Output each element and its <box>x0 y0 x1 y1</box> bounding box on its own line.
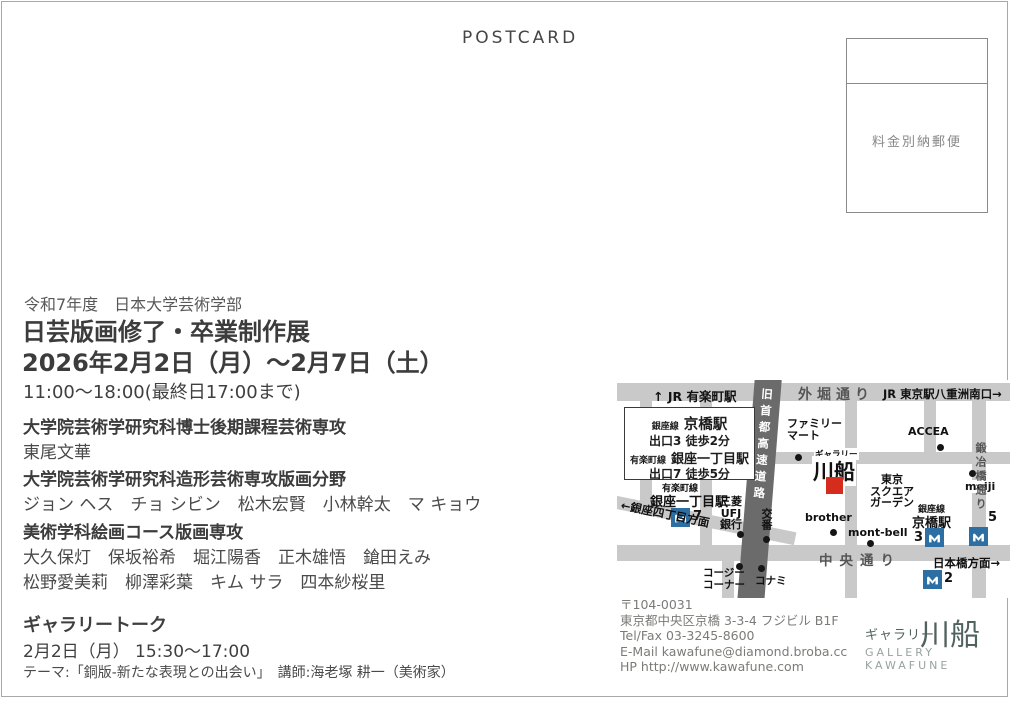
poi-koban: 交番 <box>758 508 774 530</box>
access-line1-line: 銀座線 <box>652 422 679 432</box>
section-undergrad-heading: 美術学科絵画コース版画専攻 <box>23 518 243 543</box>
gallery-logo-en: GALLERY KAWAFUNE <box>865 646 1024 672</box>
stamp-box-divider <box>847 83 987 84</box>
access-line1-station: 京橋駅 <box>684 417 728 433</box>
access-line1-exit: 出口3 徒歩2分 <box>625 434 754 448</box>
poi-konami: コナミ <box>755 573 787 588</box>
postcard-title: POSTCARD <box>462 28 578 48</box>
poi-dot-brother <box>830 529 837 536</box>
gallery-contact-block: 〒104-0031 東京都中央区京橋 3-3-4 フジビル B1F Tel/Fa… <box>620 597 847 675</box>
access-map: 旧首都高速道路 ↑ JR 有楽町駅 外堀通り JR 東京駅八重洲南口→ 銀座線 … <box>617 380 1010 598</box>
gallery-talk-theme: テーマ:「銅版-新たな表現との出会い」 講師:海老塚 耕一（美術家） <box>23 662 455 682</box>
access-line2-line: 有楽町線 <box>630 456 666 466</box>
poi-familymart: ファミリー マート <box>787 418 842 441</box>
label-sotobori-dori: 外堀通り <box>798 384 874 404</box>
postage-stamp-box: 料金別納郵便 <box>846 38 988 213</box>
station-kyobashi-exit3: 3 <box>914 530 923 545</box>
station-kyobashi-exit2: 2 <box>944 571 953 586</box>
label-kajibashi-dori: 鍛冶橋通り <box>972 442 988 512</box>
poi-tokyo-square-garden: 東京 スクエア ガーデン <box>863 474 921 509</box>
label-jr-tokyo-yaesu: JR 東京駅八重洲南口→ <box>883 386 1002 402</box>
access-line2-station: 銀座一丁目駅 <box>671 452 749 467</box>
station-access-box: 銀座線 京橋駅 出口3 徒歩2分 有楽町線 銀座一丁目駅 出口7 徒歩5分 <box>624 407 755 480</box>
section-doctoral-heading: 大学院芸術学研究科博士後期課程芸術専攻 <box>23 413 346 438</box>
poi-accea: ACCEA <box>908 425 949 438</box>
label-nihonbashi-direction: 日本橋方面→ <box>933 555 1000 571</box>
station-kyobashi-exit5: 5 <box>988 510 997 525</box>
section-undergrad-names-1: 大久保灯 保坂裕希 堀江陽香 正木雄悟 鎗田えみ <box>23 543 431 568</box>
metro-logo-icon <box>923 570 942 589</box>
poi-mitsubishi-ufj: 三菱 UFJ 銀行 <box>715 496 747 531</box>
poi-brother: brother <box>805 511 852 524</box>
tel-fax-line: Tel/Fax 03-3245-8600 <box>620 628 847 644</box>
gallery-location-marker <box>826 477 843 494</box>
website-line: HP http://www.kawafune.com <box>620 659 847 675</box>
poi-dot-konami <box>758 565 765 572</box>
poi-dot-koban <box>763 536 770 543</box>
gallery-talk-datetime: 2月2日（月） 15:30～17:00 <box>23 637 250 662</box>
label-chuo-dori: 中央通り <box>819 549 901 569</box>
postal-code: 〒104-0031 <box>620 597 847 613</box>
poi-dot-cozy-corner <box>736 563 743 570</box>
poi-dot-familymart <box>795 454 802 461</box>
gallery-talk-heading: ギャラリートーク <box>23 611 167 637</box>
poi-cozy-corner: コージー コーナー <box>703 568 745 591</box>
section-masters-heading: 大学院芸術学研究科造形芸術専攻版画分野 <box>23 465 346 490</box>
section-masters-names: ジョン ヘス チョ シビン 松木宏賢 小林幹太 マ キョウ <box>23 490 481 515</box>
event-dates: 2026年2月2日（月）～2月7日（土） <box>22 343 444 378</box>
postage-paid-label: 料金別納郵便 <box>847 131 987 150</box>
poi-dot-montbell <box>867 540 874 547</box>
metro-logo-icon <box>969 527 988 546</box>
metro-logo-icon <box>925 528 944 547</box>
label-jr-yurakucho: ↑ JR 有楽町駅 <box>653 386 736 405</box>
section-doctoral-names: 東尾文華 <box>23 438 91 463</box>
poi-dot-accea <box>937 444 944 451</box>
email-line: E-Mail kawafune@diamond.broba.cc <box>620 644 847 660</box>
poi-montbell: mont-bell <box>848 526 908 539</box>
event-title: 日芸版画修了・卒業制作展 <box>22 312 310 347</box>
poi-dot-mitsubishi <box>737 531 744 538</box>
event-hours: 11:00～18:00(最終日17:00まで) <box>23 378 301 404</box>
access-line2-exit: 出口7 徒歩5分 <box>625 467 754 481</box>
address-line: 東京都中央区京橋 3-3-4 フジビル B1F <box>620 613 847 629</box>
section-undergrad-names-2: 松野愛美莉 柳澤彩葉 キム サラ 四本紗桜里 <box>23 568 385 593</box>
